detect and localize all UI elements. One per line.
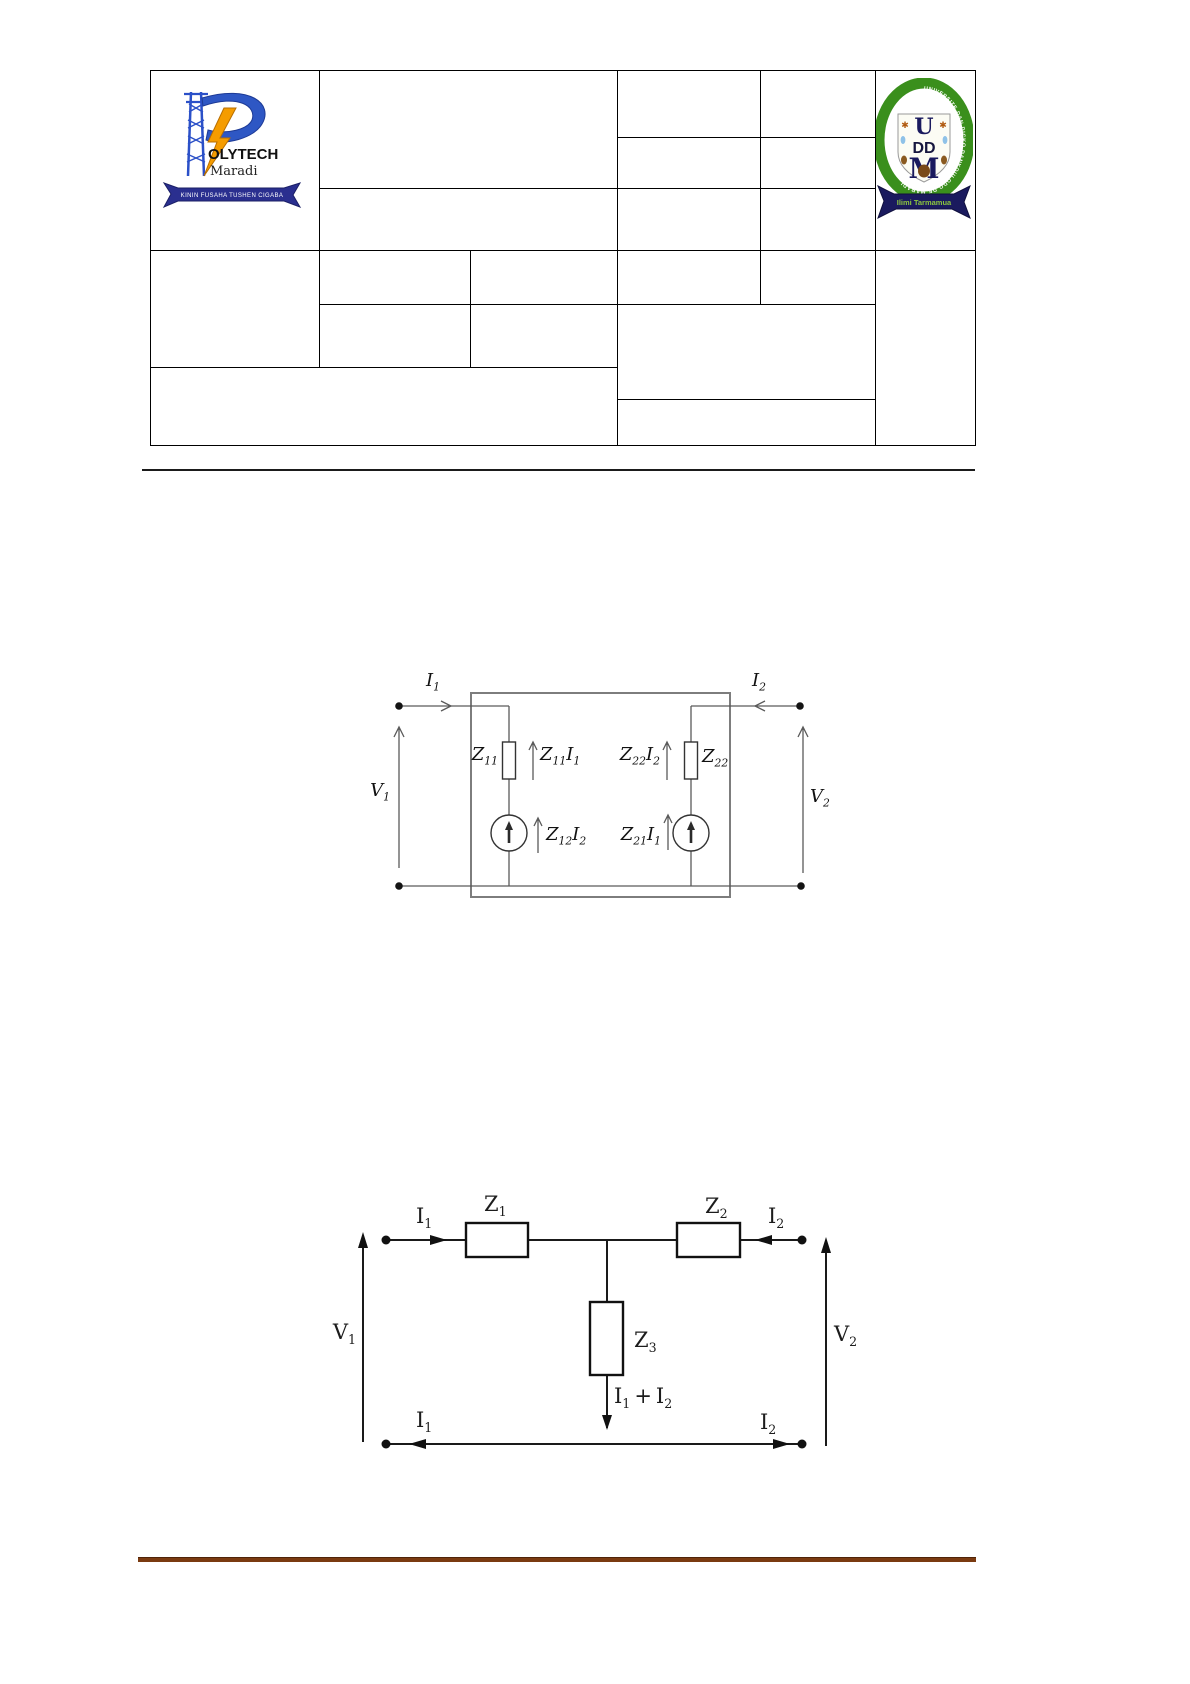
polytech-city: Maradi (210, 164, 258, 179)
sum-arrow-down (602, 1415, 612, 1430)
header-table-cell (150, 250, 320, 368)
footer-rule (138, 1557, 976, 1562)
label-i1-top: I1 (416, 1204, 432, 1231)
label-z12i2: Z12I2 (546, 824, 586, 848)
header-table-cell (470, 250, 618, 305)
polytech-motto: KININ FUSAHA TUSHEN CIGABA (181, 193, 284, 199)
label-v1: V1 (320, 1320, 356, 1347)
terminal-dot (395, 702, 403, 710)
header-table-cell (319, 188, 618, 251)
header-table-cell (470, 304, 618, 368)
v2-arrow (798, 727, 808, 873)
terminal-dot (395, 882, 403, 890)
document-page: OLYTECH Maradi KININ FUSAHA TUSHEN CIGAB… (0, 0, 1190, 1684)
z22i2-arrow (663, 742, 671, 780)
impedance-z3 (590, 1302, 623, 1375)
figure-z-equivalent-circuit: I1 I2 V1 V2 Z11 Z11I1 Z22I2 Z22 Z12I2 Z2… (350, 660, 850, 910)
header-table-cell (617, 399, 876, 446)
label-z11: Z11 (462, 744, 498, 768)
label-v2: V2 (834, 1322, 857, 1349)
label-i2-bottom: I2 (760, 1410, 776, 1437)
impedance-z22 (685, 742, 698, 779)
header-table-cell (150, 367, 618, 446)
terminal-dot (796, 702, 804, 710)
label-z22: Z22 (702, 746, 728, 770)
label-z22i2: Z22I2 (590, 744, 660, 768)
label-i1: I1 (426, 670, 440, 694)
label-v2: V2 (810, 786, 830, 810)
label-z11i1: Z11I1 (540, 744, 580, 768)
label-z1: Z1 (484, 1192, 507, 1219)
label-i1-bottom: I1 (416, 1408, 432, 1435)
header-table-cell (617, 250, 761, 305)
header-separator-rule (142, 469, 975, 471)
polytech-wordmark: OLYTECH (208, 146, 278, 163)
header-table-cell (617, 188, 761, 251)
label-i1-plus-i2: I1+I2 (614, 1384, 672, 1411)
header-table-cell (319, 304, 471, 368)
terminal-dot (382, 1440, 391, 1449)
terminal-dot (798, 1236, 807, 1245)
header-table-cell (617, 304, 876, 400)
uddm-ribbon-text: Ilimi Tarmamua (897, 198, 952, 207)
svg-text:✱: ✱ (901, 121, 909, 131)
label-v1: V1 (352, 780, 390, 804)
v2-arrowhead (821, 1237, 831, 1253)
impedance-z1 (466, 1223, 528, 1257)
i1-arrow-bottom (409, 1439, 426, 1449)
header-table-cell (760, 137, 876, 189)
v1-arrow (394, 727, 404, 868)
v1-arrowhead (358, 1232, 368, 1248)
label-z21i1: Z21I1 (590, 824, 661, 848)
i2-arrow-top (755, 1235, 772, 1245)
label-z3: Z3 (634, 1328, 657, 1355)
impedance-z11 (503, 742, 516, 779)
terminal-dot (382, 1236, 391, 1245)
header-table-cell (875, 250, 976, 446)
header-table-cell (319, 250, 471, 305)
label-i2-top: I2 (768, 1204, 784, 1231)
label-z2: Z2 (705, 1194, 728, 1221)
uddm-monogram-u: U (914, 114, 933, 140)
polytech-ribbon: KININ FUSAHA TUSHEN CIGABA (164, 183, 300, 207)
header-table-cell (760, 188, 876, 251)
uddm-logo: UNIVERSITE DAN DICKO DANKOULODO DE MARAD… (876, 78, 973, 223)
polytech-logo: OLYTECH Maradi KININ FUSAHA TUSHEN CIGAB… (158, 82, 306, 214)
i1-arrow-top (430, 1235, 447, 1245)
header-table-cell (760, 250, 876, 305)
header-table-cell (760, 70, 876, 138)
source-right-arrow (690, 829, 693, 843)
terminal-dot (797, 882, 805, 890)
label-i2: I2 (752, 670, 766, 694)
impedance-z2 (677, 1223, 740, 1257)
header-table-cell (617, 137, 761, 189)
terminal-dot (798, 1440, 807, 1449)
z21i1-arrow (664, 815, 672, 850)
i2-arrow-bottom (773, 1439, 790, 1449)
header-table-cell (617, 70, 761, 138)
svg-text:✱: ✱ (939, 121, 947, 131)
z12i2-arrow (534, 818, 542, 853)
header-table-cell (319, 70, 618, 189)
figure-t-network-circuit: I1 Z1 Z2 I2 V1 V2 Z3 I1+I2 I1 I2 (320, 1180, 860, 1470)
z11i1-arrow (529, 742, 537, 780)
source-left-arrow (508, 829, 511, 843)
